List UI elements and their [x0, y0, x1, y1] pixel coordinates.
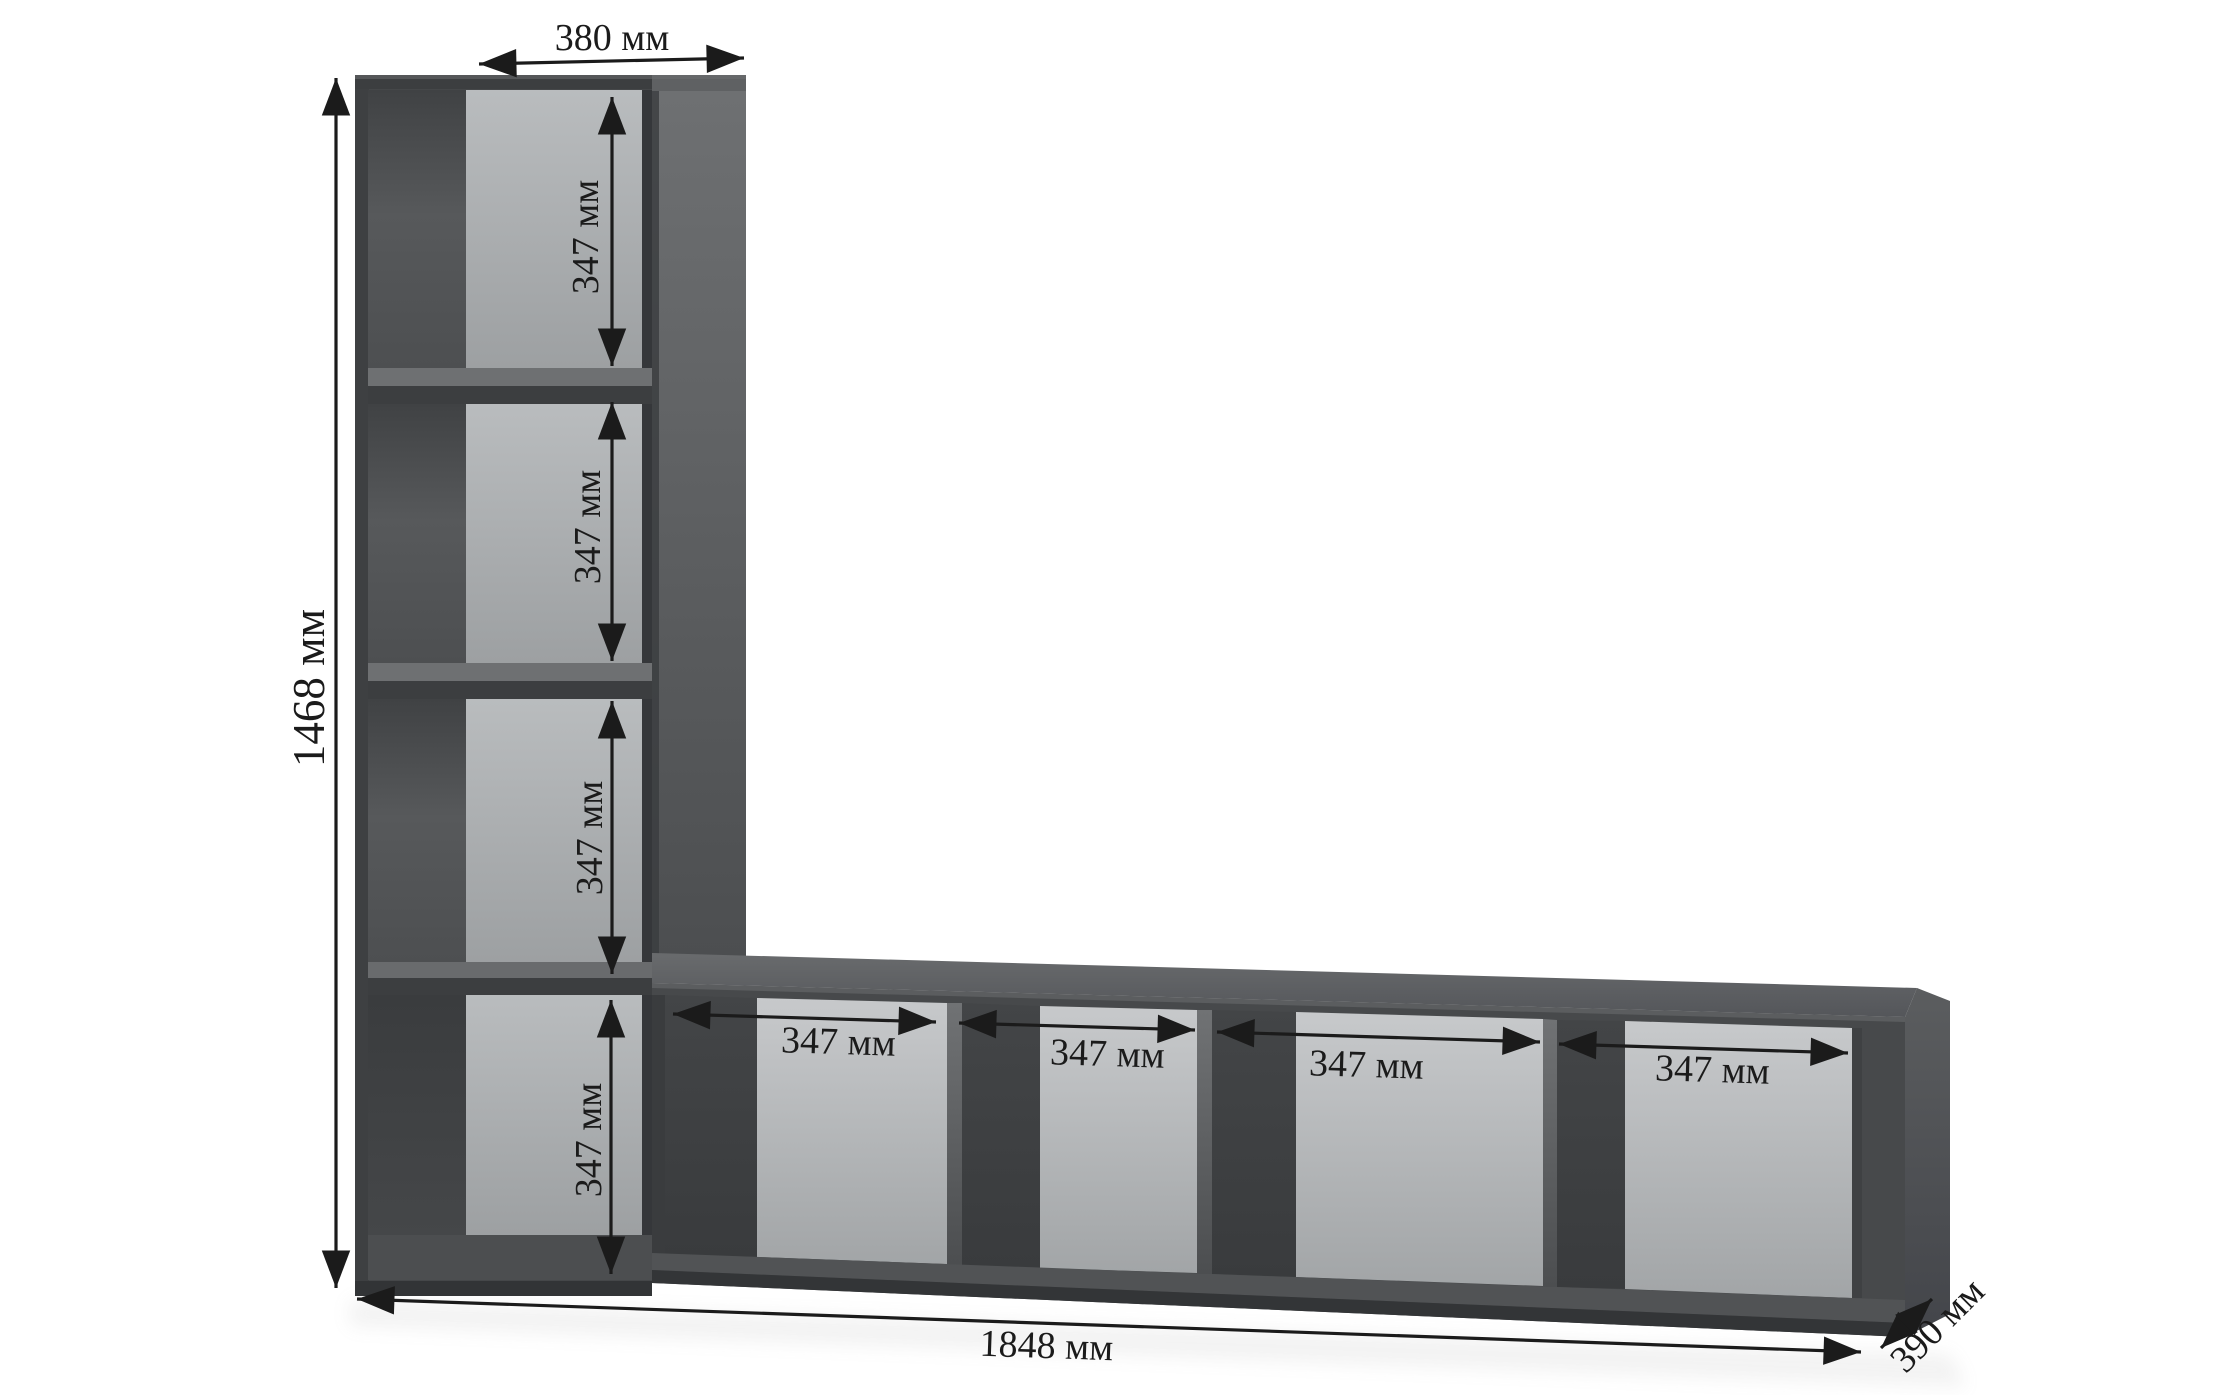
column-cell2-right-seam [642, 404, 652, 663]
dim-label-top-width: 380 мм [555, 17, 670, 59]
dim-label-row-cell1: 347 мм [780, 1019, 896, 1065]
dim-label-column-cell2: 347 мм [567, 470, 609, 585]
row-divider3 [1543, 1019, 1557, 1287]
row-cell4-right-seam [1852, 1028, 1862, 1298]
column-cell3-back-panel [466, 699, 642, 962]
dim-label-row-cell3: 347 мм [1308, 1042, 1424, 1088]
row-divider1 [947, 1003, 962, 1265]
column-cell2-left-face [368, 404, 466, 663]
column-cell4-back-panel [466, 995, 642, 1235]
shelf3-top-face [368, 962, 652, 978]
row-left-seam [652, 995, 665, 1254]
row-right-side-panel [1905, 988, 1950, 1337]
column-cell3-right-seam [642, 699, 652, 962]
diagram-canvas: 380 мм 1468 мм 347 мм 347 мм 347 мм 347 … [0, 0, 2232, 1395]
row-divider2 [1197, 1010, 1212, 1274]
column-left-edge [355, 75, 369, 1296]
dim-label-column-cell3: 347 мм [569, 781, 611, 896]
row-cell2-left-shadow [962, 1003, 1040, 1268]
row-cell4-left-shadow [1557, 1020, 1625, 1289]
column-cell1-back-panel [466, 90, 642, 368]
column-bottom-edge [355, 1281, 652, 1296]
shelf1-front-edge [368, 386, 652, 404]
row-unit [652, 953, 1950, 1337]
shelf2-top-face [368, 663, 652, 681]
column-cell1-left-face [368, 90, 466, 368]
column-cell4-right-seam [642, 995, 652, 1235]
row-cell1-left-shadow [665, 995, 757, 1257]
shelf3-front-edge [368, 978, 652, 995]
column-cell1-right-seam [642, 90, 652, 368]
shelf1-top-face [368, 368, 652, 386]
dim-label-column-cell1: 347 мм [565, 180, 607, 295]
column-right-side-panel [652, 89, 746, 962]
dim-label-column-cell4: 347 мм [568, 1083, 610, 1198]
dim-label-row-cell4: 347 мм [1654, 1047, 1770, 1093]
column-top-highlight [355, 75, 746, 79]
column-cell2-back-panel [466, 404, 642, 663]
column-right-side-seam [652, 89, 659, 962]
shelf2-front-edge [368, 681, 652, 699]
column-cell3-left-face [368, 699, 466, 962]
dim-label-row-cell2: 347 мм [1049, 1031, 1165, 1077]
row-cell3-left-shadow [1212, 1010, 1296, 1277]
column-cell4-left-face [368, 995, 466, 1235]
dim-label-total-length: 1848 мм [979, 1323, 1114, 1370]
dim-label-total-height: 1468 мм [284, 609, 334, 767]
furniture-dimension-diagram: 380 мм 1468 мм 347 мм 347 мм 347 мм 347 … [0, 0, 2232, 1395]
